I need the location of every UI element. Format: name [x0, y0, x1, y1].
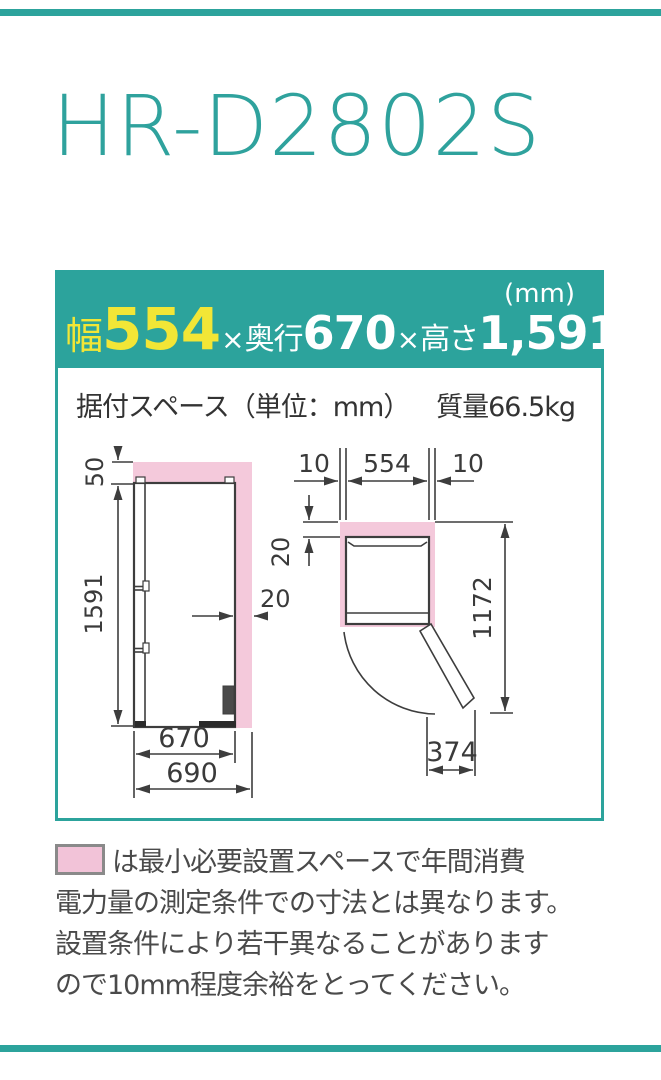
side-depth-label: 670	[158, 723, 210, 754]
side-height-label: 1591	[80, 573, 108, 634]
width-value: 554	[102, 295, 220, 363]
top-rear-clearance-label: 20	[267, 537, 295, 568]
times-sign: ×	[220, 323, 244, 356]
footnote-text: は最小必要設置スペースで年間消費	[112, 847, 525, 878]
install-space-label: 据付スペース（単位：mm）	[76, 385, 409, 424]
install-space-row: 据付スペース（単位：mm） 質量66.5kg	[76, 385, 575, 424]
compressor-detail	[223, 686, 234, 714]
height-value: 1,591	[478, 306, 619, 360]
dimensions-row: 幅 554 × 奥行 670 × 高さ 1,591	[65, 295, 619, 363]
times-sign: ×	[396, 323, 420, 356]
top-accent-bar	[0, 9, 661, 16]
depth-label: 奥行	[245, 314, 303, 358]
footnote-line: 電力量の測定条件での寸法とは異なります。	[55, 883, 605, 924]
clearance-footnote: は最小必要設置スペースで年間消費 電力量の測定条件での寸法とは異なります。 設置…	[55, 842, 605, 1006]
width-label: 幅	[65, 305, 102, 360]
top-front-space-label: 1172	[468, 576, 497, 640]
dimensions-header: (mm) 幅 554 × 奥行 670 × 高さ 1,591	[58, 273, 601, 368]
depth-value: 670	[303, 306, 396, 360]
top-left-clearance-label: 10	[298, 449, 330, 478]
bottom-accent-bar	[0, 1045, 661, 1052]
installation-diagram: 50 1591 20 670 690	[58, 428, 595, 813]
footnote-line: 設置条件により若干異なることがあります	[55, 924, 605, 965]
min-space-legend-swatch	[55, 844, 105, 875]
top-width-label: 554	[363, 449, 411, 478]
side-top-clearance-label: 50	[81, 457, 109, 488]
open-door	[420, 624, 474, 708]
height-label: 高さ	[420, 314, 478, 358]
weight-label: 質量66.5kg	[436, 385, 575, 424]
fridge-top-outline	[346, 537, 429, 624]
side-rear-clearance-label: 20	[260, 585, 291, 613]
top-right-clearance-label: 10	[452, 449, 484, 478]
installation-spec-box: (mm) 幅 554 × 奥行 670 × 高さ 1,591 据付スペース（単位…	[55, 270, 604, 821]
spec-sheet-page: HR-D2802S (mm) 幅 554 × 奥行 670 × 高さ 1,591…	[0, 0, 661, 1080]
footnote-line: は最小必要設置スペースで年間消費	[55, 842, 605, 883]
fridge-side-outline	[134, 483, 235, 727]
side-total-depth-label: 690	[166, 758, 218, 789]
footnote-line: ので10mm程度余裕をとってください。	[55, 965, 605, 1006]
model-number-title: HR-D2802S	[52, 84, 541, 168]
top-door-swing-label: 374	[426, 737, 478, 768]
door-swing-arc	[344, 632, 435, 714]
